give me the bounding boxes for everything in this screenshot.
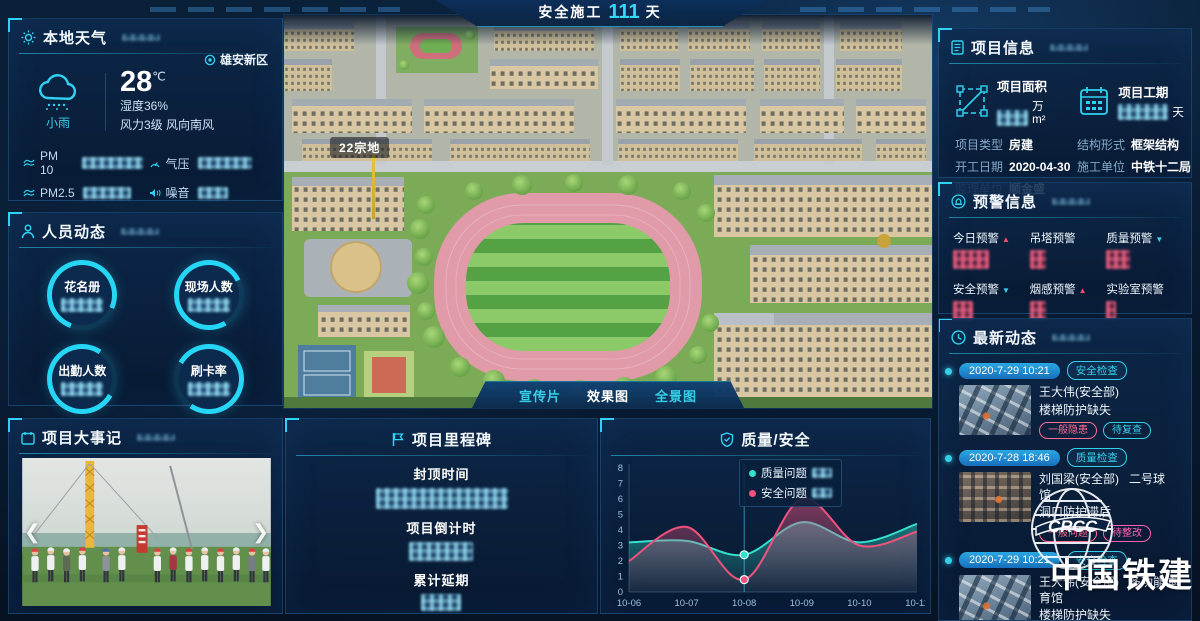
alert-smoke: 烟感预警 — [1030, 281, 1101, 320]
trend-down-icon — [1152, 233, 1163, 245]
pm25-icon — [23, 188, 35, 198]
header-decoration-right — [800, 7, 1050, 12]
project-info-title: 项目信息 — [971, 37, 1035, 58]
news-timestamp: 2020-7-28 18:46 — [959, 450, 1060, 466]
metric-value-blurred — [198, 157, 252, 169]
header-decoration — [1050, 44, 1088, 51]
alert-value-blurred — [953, 250, 989, 269]
chart-panel-title: 质量/安全 — [741, 429, 810, 450]
alert-crane: 吊塔预警 — [1030, 230, 1101, 269]
milestone-panel-title: 项目里程碑 — [412, 429, 492, 450]
alerts-panel: 预警信息 今日预警 吊塔预警 质量预警 安全预警 烟感预警 实验室预警 — [938, 182, 1192, 314]
ring-value-blurred — [61, 298, 103, 312]
svg-text:10-08: 10-08 — [732, 598, 756, 609]
alert-label: 吊塔预警 — [1030, 233, 1076, 245]
news-issue: 楼梯防护缺失 — [1039, 403, 1151, 419]
alert-today: 今日预警 — [953, 230, 1024, 269]
svg-text:10-06: 10-06 — [616, 598, 640, 609]
alert-label: 质量预警 — [1106, 233, 1152, 245]
alert-label: 烟感预警 — [1030, 284, 1076, 296]
news-category-badge: 安全检查 — [1067, 551, 1127, 570]
svg-text:8: 8 — [617, 463, 622, 474]
trend-up-icon — [999, 233, 1010, 245]
news-category-badge: 安全检查 — [1067, 361, 1127, 380]
svg-text:10-07: 10-07 — [674, 598, 698, 609]
person-icon — [21, 224, 35, 239]
metric-value-blurred — [82, 157, 143, 169]
milestone-panel: 项目里程碑 封顶时间 项目倒计时 累计延期 — [285, 418, 598, 614]
weather-panel-title: 本地天气 — [43, 27, 107, 48]
header-decoration — [121, 228, 159, 235]
ring-label: 花名册 — [64, 278, 100, 295]
news-timestamp: 2020-7-29 10:21 — [959, 552, 1060, 568]
ring-value-blurred — [188, 382, 230, 396]
ring-value-blurred — [188, 298, 230, 312]
metric-label: PM2.5 — [40, 186, 75, 200]
svg-text:3: 3 — [617, 541, 622, 552]
stat-project-duration: 项目工期 天 — [1078, 76, 1184, 126]
ring-swipe-rate: 刷卡率 — [174, 344, 244, 414]
news-category-badge: 质量检查 — [1067, 448, 1127, 467]
svg-text:10-09: 10-09 — [789, 598, 813, 609]
project-3d-viewer: 22宗地 宣传片 效果图 全景图 — [283, 14, 933, 409]
chart-tooltip: 质量问题 安全问题 — [739, 459, 842, 507]
milestone-value-blurred — [409, 542, 473, 561]
ring-roster: 花名册 — [47, 260, 117, 330]
metric-label: 噪音 — [166, 184, 190, 201]
temperature-value: 28 — [120, 66, 152, 98]
location-pin-icon — [204, 54, 216, 66]
news-panel: 最新动态 2020-7-29 10:21 安全检查 王大伟(安全部) 楼梯防护缺… — [938, 318, 1192, 621]
metric-value-blurred — [83, 187, 131, 199]
metric-noise: 噪音 — [149, 184, 269, 201]
project-info-panel: 项目信息 项目面积 万m² 项目工期 天 项目类型房建 结构形式框架结构 开工日… — [938, 28, 1192, 178]
field-contractor: 施工单位中铁十二局 — [1077, 158, 1191, 175]
stat-value-blurred — [1118, 104, 1168, 120]
news-person: 王大伟(安全部) — [1039, 385, 1119, 399]
page-header: 安全施工111天 — [0, 0, 1200, 28]
metric-pm25: PM2.5 — [23, 184, 143, 201]
svg-text:10-11: 10-11 — [905, 598, 925, 609]
ring-label: 出勤人数 — [58, 362, 106, 379]
sun-icon — [21, 30, 36, 45]
stat-label: 项目工期 — [1118, 82, 1184, 101]
viewer-button-promo[interactable]: 宣传片 — [519, 386, 561, 405]
alert-value-blurred — [1106, 250, 1130, 269]
pressure-icon — [149, 158, 161, 168]
milestone-label: 累计延期 — [413, 570, 469, 589]
divider — [105, 73, 106, 131]
weather-panel: 本地天气 雄安新区 小雨 28℃ 湿度36% 风力3级 风向南风 PM 10 — [8, 18, 283, 201]
calendar-icon — [21, 431, 35, 445]
news-tag: 待整改 — [1103, 525, 1151, 542]
calendar-grid-icon — [1078, 85, 1110, 117]
stat-value-blurred — [997, 110, 1028, 126]
carousel-prev-arrow[interactable]: ❮ — [24, 520, 41, 545]
metric-value-blurred — [198, 187, 228, 199]
ring-onsite: 现场人数 — [174, 260, 244, 330]
field-value: 房建 — [1009, 138, 1033, 152]
milestone-label: 封顶时间 — [413, 464, 469, 483]
news-tag: 一般问题 — [1039, 525, 1097, 542]
ring-attendance: 出勤人数 — [47, 344, 117, 414]
field-structure: 结构形式框架结构 — [1077, 136, 1191, 153]
news-issue: 楼梯防护缺失 — [1039, 608, 1183, 621]
milestone-photo — [21, 458, 272, 606]
safety-series-label: 安全问题 — [761, 485, 807, 501]
stat-label: 项目面积 — [997, 76, 1052, 95]
safety-series-dot — [749, 490, 756, 497]
clock-icon — [951, 330, 966, 345]
event-photo-carousel: ❮ ❯ — [21, 458, 272, 606]
noise-icon — [149, 188, 161, 198]
carousel-next-arrow[interactable]: ❯ — [252, 520, 269, 545]
rain-cloud-icon — [35, 72, 81, 112]
field-value: 中铁十二局 — [1131, 160, 1191, 174]
alert-label: 安全预警 — [953, 284, 999, 296]
metric-pm10: PM 10 — [23, 149, 143, 177]
news-tag: 一般隐患 — [1039, 422, 1097, 439]
stat-unit: 万m² — [1032, 98, 1052, 126]
ring-label: 刷卡率 — [191, 362, 227, 379]
viewer-button-panorama[interactable]: 全景图 — [655, 386, 697, 405]
parcel-pin-label: 22宗地 — [330, 137, 389, 158]
flag-icon — [391, 432, 405, 447]
document-icon — [951, 40, 964, 55]
field-project-type: 项目类型房建 — [955, 136, 1073, 153]
weather-condition: 小雨 — [46, 114, 70, 131]
header-decoration — [1052, 334, 1090, 341]
tooltip-quality-row: 质量问题 — [749, 465, 832, 481]
field-start-date: 开工日期2020-04-30 — [955, 158, 1073, 175]
field-label: 施工单位 — [1077, 160, 1125, 174]
wind-text: 风力3级 风向南风 — [120, 116, 214, 135]
events-panel-title: 项目大事记 — [42, 427, 122, 448]
safety-days-prefix: 安全施工 — [538, 4, 602, 20]
milestone-label: 项目倒计时 — [406, 518, 476, 537]
alert-quality: 质量预警 — [1106, 230, 1177, 269]
viewer-button-render[interactable]: 效果图 — [587, 386, 629, 405]
trend-up-icon — [1076, 284, 1087, 296]
milestone-value-blurred — [421, 594, 461, 611]
safety-days-count: 111 — [608, 1, 639, 23]
parcel-pin-pole — [372, 155, 375, 219]
personnel-panel: 人员动态 花名册 现场人数 出勤人数 刷卡率 — [8, 212, 283, 406]
stat-project-area: 项目面积 万m² — [955, 76, 1052, 126]
ring-label: 现场人数 — [185, 278, 233, 295]
news-timestamp: 2020-7-29 10:21 — [959, 363, 1060, 379]
aerial-render — [284, 15, 932, 408]
field-label: 结构形式 — [1077, 138, 1125, 152]
svg-text:0: 0 — [617, 587, 622, 598]
quality-safety-panel: 质量/安全 01234567810-0610-0710-0810-0910-10… — [600, 418, 931, 614]
tooltip-value-blurred — [812, 468, 832, 478]
header-decoration — [1052, 198, 1090, 205]
news-entry[interactable]: 2020-7-29 10:21 安全检查 王大伟(安全部)多功能体育馆 楼梯防护… — [939, 551, 1191, 621]
milestone-value-blurred — [376, 488, 508, 509]
svg-text:5: 5 — [617, 510, 622, 521]
trend-down-icon — [999, 284, 1010, 296]
news-panel-title: 最新动态 — [973, 327, 1037, 348]
sports-courts — [298, 345, 414, 401]
field-value: 框架结构 — [1131, 138, 1179, 152]
running-track — [434, 193, 702, 381]
header-decoration — [137, 434, 175, 441]
svg-text:1: 1 — [617, 572, 622, 583]
svg-text:7: 7 — [617, 479, 622, 490]
header-decoration — [122, 34, 160, 41]
area-icon — [955, 84, 989, 118]
news-thumbnail — [959, 472, 1031, 522]
pm10-icon — [23, 158, 35, 168]
humidity-text: 湿度36% — [120, 97, 214, 116]
personnel-panel-title: 人员动态 — [42, 221, 106, 242]
shield-check-icon — [720, 432, 734, 447]
quality-series-label: 质量问题 — [761, 465, 807, 481]
alarm-bell-icon — [951, 194, 966, 209]
location-row: 雄安新区 — [204, 51, 268, 68]
news-person: 刘国梁(安全部) — [1039, 472, 1119, 486]
alert-lab: 实验室预警 — [1106, 281, 1177, 320]
alert-label: 实验室预警 — [1106, 284, 1164, 296]
news-entry[interactable]: 2020-7-28 18:46 质量检查 刘国梁(安全部)二号球馆 洞口防护滞后… — [939, 448, 1191, 544]
svg-text:6: 6 — [617, 494, 622, 505]
news-tag: 待复查 — [1103, 422, 1151, 439]
field-label: 项目类型 — [955, 138, 1003, 152]
metric-label: PM 10 — [40, 149, 74, 177]
field-label: 开工日期 — [955, 160, 1003, 174]
safety-days-suffix: 天 — [646, 4, 662, 20]
news-issue: 洞口防护滞后 — [1039, 505, 1183, 521]
milestone-topping-time: 封顶时间 — [376, 464, 508, 509]
alert-value-blurred — [1030, 250, 1046, 269]
events-panel: 项目大事记 — [8, 418, 283, 614]
milestone-countdown: 项目倒计时 — [406, 518, 476, 561]
metric-label: 气压 — [166, 155, 190, 172]
safety-days-banner: 安全施工111天 — [435, 0, 765, 27]
svg-text:4: 4 — [617, 525, 622, 536]
viewer-mode-switcher: 宣传片 效果图 全景图 — [472, 381, 744, 408]
metric-pressure: 气压 — [149, 149, 269, 177]
news-person: 王大伟(安全部) — [1039, 575, 1119, 589]
news-thumbnail — [959, 575, 1031, 621]
stat-unit: 天 — [1172, 104, 1184, 120]
svg-text:2: 2 — [617, 556, 622, 567]
milestone-delay: 累计延期 — [413, 570, 469, 611]
tooltip-safety-row: 安全问题 — [749, 485, 832, 501]
temperature-unit: ℃ — [152, 69, 165, 83]
svg-text:10-10: 10-10 — [847, 598, 871, 609]
news-thumbnail — [959, 385, 1031, 435]
alerts-panel-title: 预警信息 — [973, 191, 1037, 212]
news-entry[interactable]: 2020-7-29 10:21 安全检查 王大伟(安全部) 楼梯防护缺失 一般隐… — [939, 361, 1191, 441]
tooltip-value-blurred — [812, 488, 832, 498]
alert-label: 今日预警 — [953, 233, 999, 245]
header-decoration-left — [150, 7, 400, 12]
quality-series-dot — [749, 470, 756, 477]
ring-value-blurred — [61, 382, 103, 396]
field-value: 2020-04-30 — [1009, 160, 1070, 174]
location-name: 雄安新区 — [220, 51, 268, 68]
alert-safety: 安全预警 — [953, 281, 1024, 320]
